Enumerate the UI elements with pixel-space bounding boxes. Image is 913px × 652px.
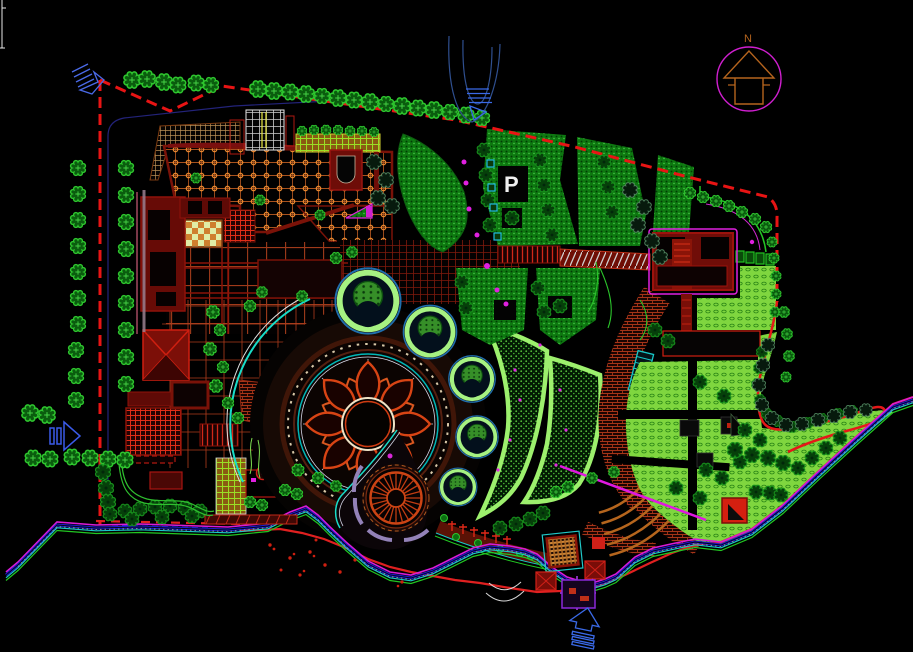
svg-text:N: N [744,33,752,45]
svg-text:P: P [504,172,519,197]
